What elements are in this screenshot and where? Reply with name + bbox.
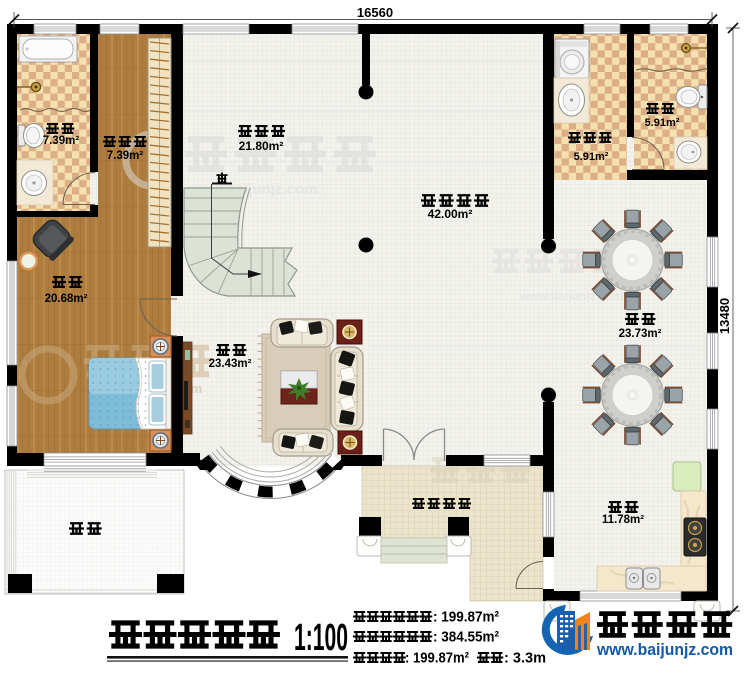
svg-text:23.43m²: 23.43m² <box>209 358 252 370</box>
svg-text:: 384.55m²: : 384.55m² <box>433 629 499 646</box>
svg-text:13480: 13480 <box>717 298 732 334</box>
svg-text:7.39m²: 7.39m² <box>43 135 80 147</box>
svg-text:7.39m²: 7.39m² <box>107 150 144 162</box>
svg-text:: 199.87m²: : 199.87m² <box>433 609 499 626</box>
svg-text:21.80m²: 21.80m² <box>239 139 284 153</box>
svg-text:5.91m²: 5.91m² <box>645 117 680 129</box>
svg-text:1:100: 1:100 <box>294 617 348 659</box>
svg-text:: 3.3m: : 3.3m <box>504 650 546 667</box>
svg-text:20.68m²: 20.68m² <box>45 293 88 305</box>
svg-text:16560: 16560 <box>357 5 393 20</box>
svg-text:42.00m²: 42.00m² <box>428 207 473 221</box>
svg-text:23.73m²: 23.73m² <box>619 328 662 340</box>
svg-text:www.baijunjz.com: www.baijunjz.com <box>596 640 733 659</box>
svg-text:11.78m²: 11.78m² <box>602 514 644 526</box>
svg-text:5.91m²: 5.91m² <box>574 151 609 163</box>
svg-text:: 199.87m²: : 199.87m² <box>405 650 469 667</box>
